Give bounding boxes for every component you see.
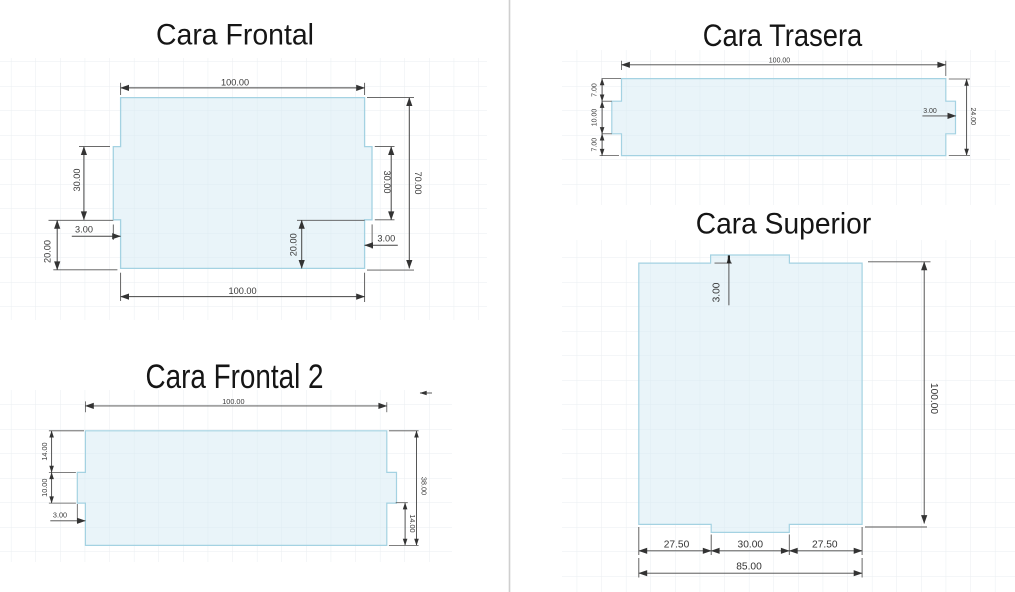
svg-text:85.00: 85.00 xyxy=(736,562,762,573)
svg-text:Cara Frontal: Cara Frontal xyxy=(156,19,314,52)
svg-text:14.00: 14.00 xyxy=(408,514,417,532)
svg-text:Cara Frontal 2: Cara Frontal 2 xyxy=(146,358,324,396)
svg-text:10.00: 10.00 xyxy=(591,109,598,127)
svg-text:24.00: 24.00 xyxy=(969,108,976,126)
svg-text:38.00: 38.00 xyxy=(419,477,428,495)
svg-text:100.00: 100.00 xyxy=(222,397,244,406)
svg-text:3.00: 3.00 xyxy=(712,282,723,302)
svg-text:100.00: 100.00 xyxy=(229,286,257,296)
svg-text:100.00: 100.00 xyxy=(769,58,791,65)
svg-text:7.00: 7.00 xyxy=(591,138,598,152)
svg-text:3.00: 3.00 xyxy=(377,234,395,244)
svg-text:20.00: 20.00 xyxy=(288,233,298,256)
svg-text:10.00: 10.00 xyxy=(40,479,49,497)
svg-text:3.00: 3.00 xyxy=(923,108,937,115)
svg-text:3.00: 3.00 xyxy=(75,224,93,234)
svg-text:100.00: 100.00 xyxy=(221,78,249,88)
svg-text:27.50: 27.50 xyxy=(812,539,838,550)
svg-text:30.00: 30.00 xyxy=(382,171,392,194)
svg-text:20.00: 20.00 xyxy=(43,240,53,263)
svg-text:70.00: 70.00 xyxy=(413,172,423,195)
svg-text:3.00: 3.00 xyxy=(53,511,67,520)
svg-text:100.00: 100.00 xyxy=(928,383,939,414)
svg-text:27.50: 27.50 xyxy=(664,539,690,550)
svg-text:14.00: 14.00 xyxy=(40,442,49,460)
svg-text:7.00: 7.00 xyxy=(591,83,598,97)
svg-text:30.00: 30.00 xyxy=(738,539,764,550)
svg-text:30.00: 30.00 xyxy=(72,169,82,192)
svg-text:Cara Superior: Cara Superior xyxy=(696,208,872,241)
svg-text:Cara Trasera: Cara Trasera xyxy=(703,18,863,53)
